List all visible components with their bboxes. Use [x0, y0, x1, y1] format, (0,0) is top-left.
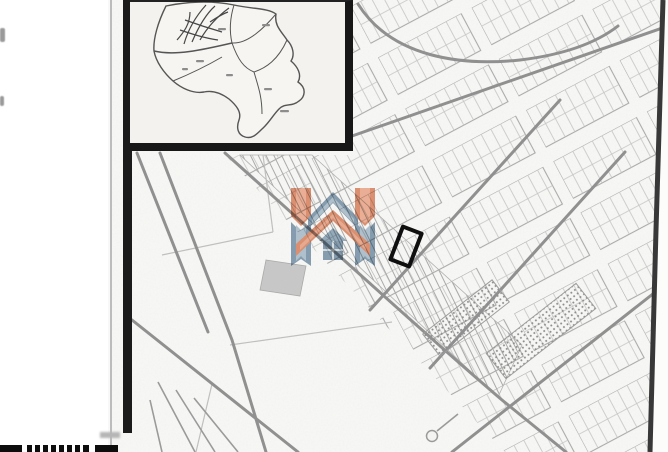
inset-region-map [130, 0, 353, 151]
cutoff-caption-strip [0, 445, 130, 452]
scan-smudge [0, 28, 5, 42]
scan-smudge [0, 96, 4, 106]
page-fold-line [110, 0, 112, 452]
house-h-logo-icon [283, 178, 383, 278]
inset-map-canvas [130, 2, 345, 141]
scan-smudge [100, 432, 120, 438]
scanned-location-map-page [0, 0, 668, 452]
